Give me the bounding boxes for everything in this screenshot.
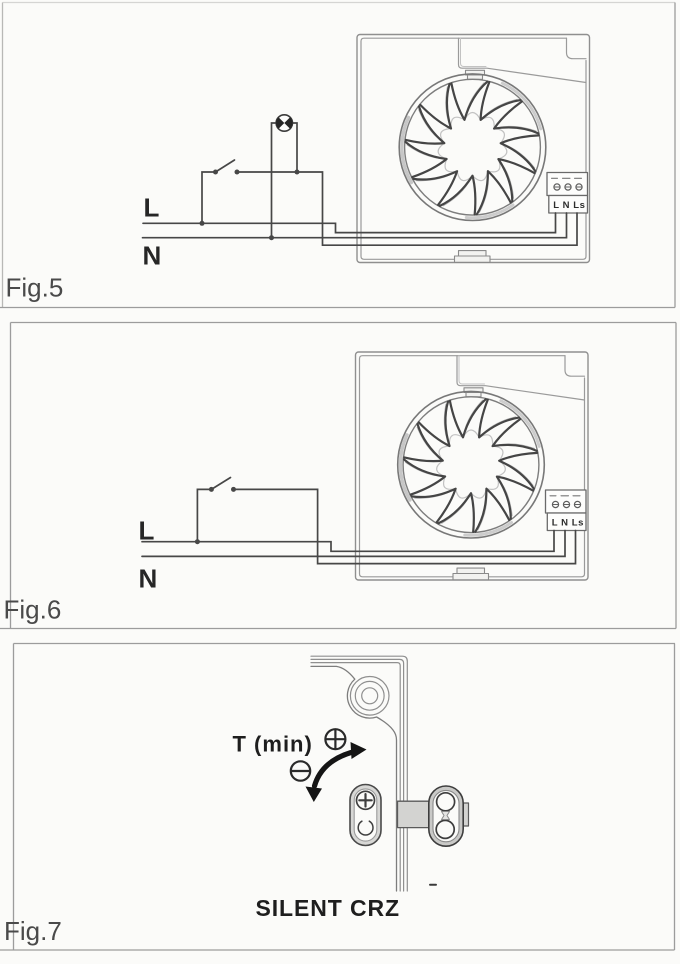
svg-text:N: N [143,241,162,271]
svg-text:L N Ls: L N Ls [552,518,584,529]
svg-text:SILENT CRZ: SILENT CRZ [256,895,400,921]
svg-text:T (min): T (min) [233,732,313,757]
svg-text:Fig.7: Fig.7 [4,916,62,946]
svg-text:N: N [139,564,158,594]
svg-text:Fig.6: Fig.6 [4,595,62,625]
svg-text:L N Ls: L N Ls [553,200,585,211]
svg-text:Fig.5: Fig.5 [6,273,64,303]
svg-text:L: L [144,193,160,223]
